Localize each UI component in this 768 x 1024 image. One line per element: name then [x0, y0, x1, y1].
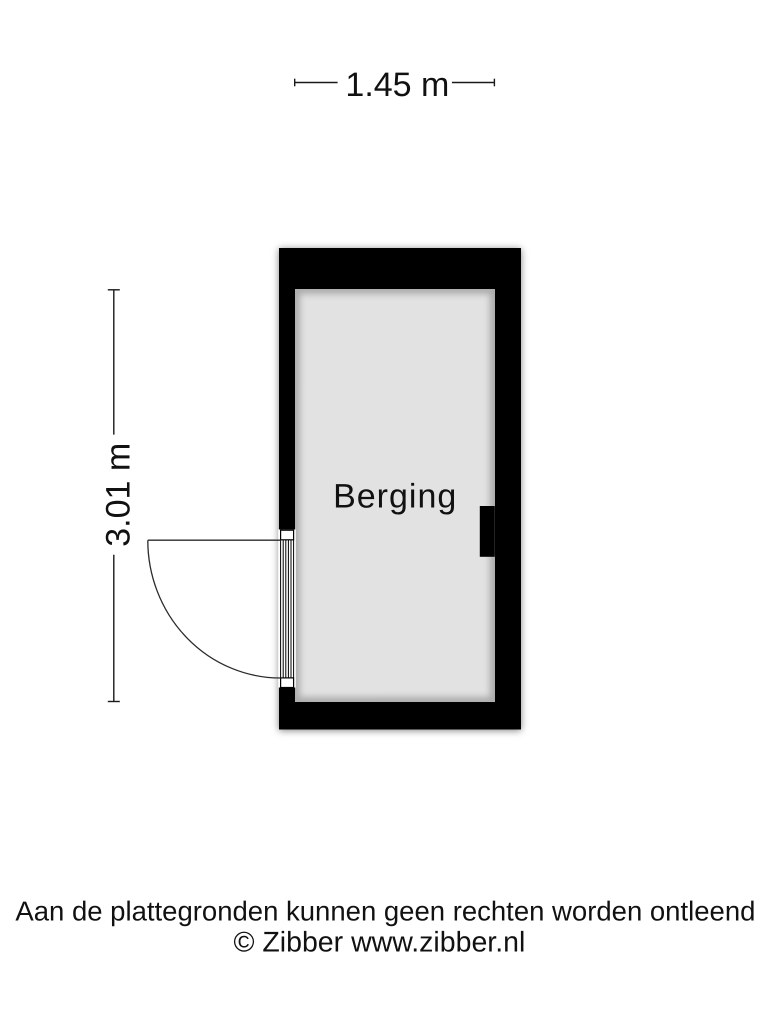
svg-text:Aan de plattegronden kunnen ge: Aan de plattegronden kunnen geen rechten… [15, 896, 755, 927]
svg-text:1.45 m: 1.45 m [345, 66, 449, 104]
svg-text:© Zibber www.zibber.nl: © Zibber www.zibber.nl [233, 927, 525, 959]
svg-text:Berging: Berging [333, 478, 457, 516]
svg-text:3.01 m: 3.01 m [100, 443, 138, 547]
